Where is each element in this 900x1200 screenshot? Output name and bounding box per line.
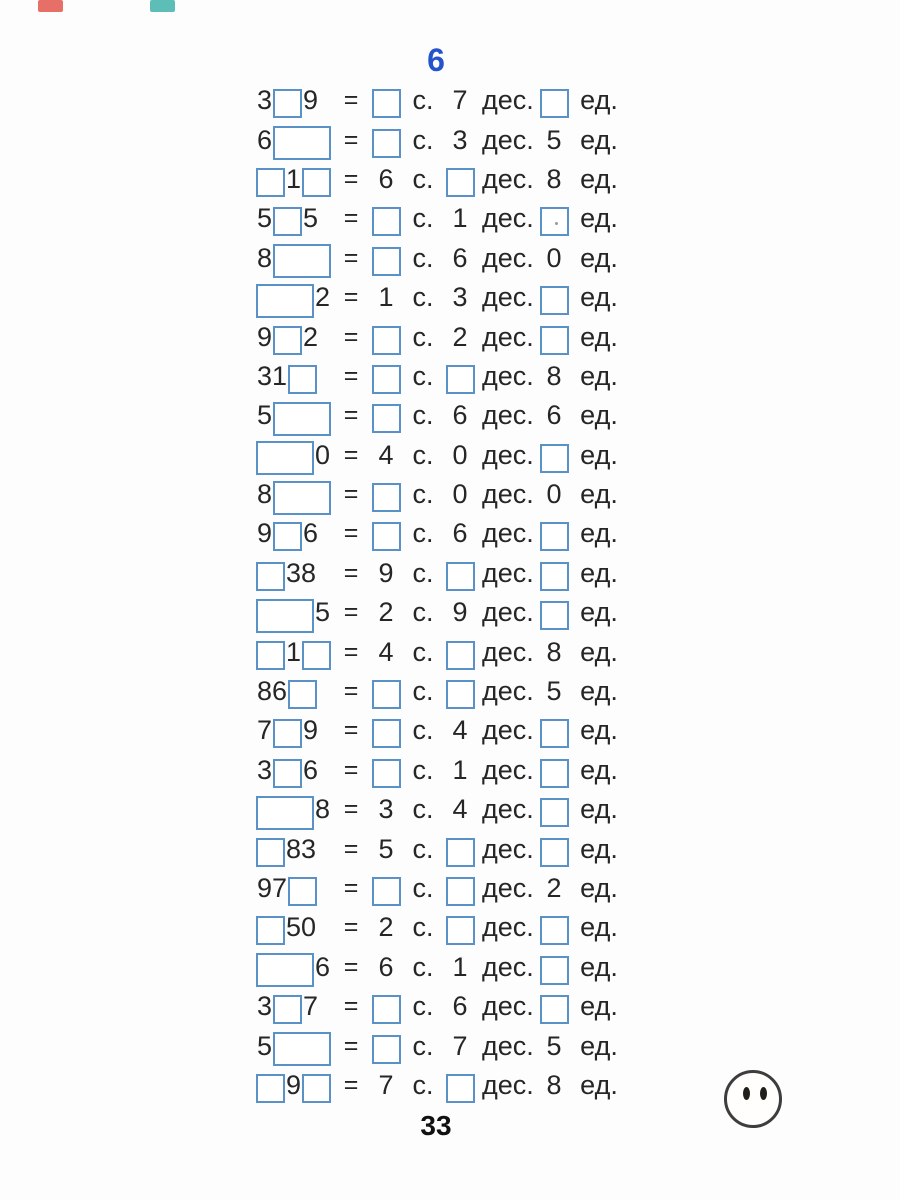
tens-label: дес. <box>482 952 532 983</box>
units-label: ед. <box>576 164 622 195</box>
answer-box[interactable] <box>302 1074 331 1103</box>
answer-box[interactable] <box>256 562 285 591</box>
tens-label: дес. <box>482 479 532 510</box>
tens-slot: 1 <box>438 203 482 234</box>
digit: 0 <box>451 479 468 510</box>
digit: 4 <box>377 440 394 471</box>
number-part: 38 <box>256 558 338 589</box>
equals-sign: = <box>338 441 364 470</box>
units-slot: 2 <box>532 873 576 904</box>
answer-box[interactable] <box>540 444 569 473</box>
hundreds-label: с. <box>408 637 438 668</box>
answer-box[interactable] <box>540 562 569 591</box>
tens-slot <box>438 1071 482 1100</box>
tens-label: дес. <box>482 715 532 746</box>
units-slot: 0 <box>532 479 576 510</box>
answer-box[interactable] <box>540 798 569 827</box>
equals-sign: = <box>338 953 364 982</box>
hundreds-slot <box>364 716 408 745</box>
answer-box[interactable] <box>372 247 401 276</box>
number-part: 96 <box>256 518 338 549</box>
number-part: 79 <box>256 715 338 746</box>
tens-label: дес. <box>482 676 532 707</box>
units-slot <box>532 716 576 745</box>
tens-slot: 0 <box>438 440 482 471</box>
units-slot: 6 <box>532 400 576 431</box>
hundreds-slot <box>364 480 408 509</box>
units-label: ед. <box>576 755 622 786</box>
units-slot <box>532 953 576 982</box>
answer-box[interactable] <box>288 877 317 906</box>
units-slot <box>532 559 576 588</box>
hundreds-slot <box>364 1032 408 1061</box>
tens-slot <box>438 874 482 903</box>
number-part: 5 <box>256 596 338 630</box>
tens-label: дес. <box>482 243 532 274</box>
answer-box[interactable] <box>446 916 475 945</box>
answer-box[interactable] <box>273 719 302 748</box>
digit: 1 <box>451 755 468 786</box>
tens-label: дес. <box>482 518 532 549</box>
answer-box[interactable] <box>372 129 401 158</box>
tens-label: дес. <box>482 400 532 431</box>
number-part: 5 <box>256 399 338 433</box>
exercise-row: 92=с.2дес.ед. <box>256 317 622 356</box>
number-part: 31 <box>256 361 338 392</box>
units-label: ед. <box>576 558 622 589</box>
tens-label: дес. <box>482 164 532 195</box>
answer-box[interactable] <box>446 562 475 591</box>
number-part: 55 <box>256 203 338 234</box>
digit: 2 <box>314 282 331 313</box>
hundreds-slot: 4 <box>364 440 408 471</box>
number-part: 50 <box>256 912 338 943</box>
answer-box[interactable] <box>273 522 302 551</box>
equals-sign: = <box>338 362 364 391</box>
units-slot: 5 <box>532 1031 576 1062</box>
answer-box[interactable] <box>302 168 331 197</box>
tens-slot: 6 <box>438 400 482 431</box>
hundreds-label: с. <box>408 243 438 274</box>
answer-box[interactable] <box>372 365 401 394</box>
digit: 97 <box>256 873 288 904</box>
corner-mark-red <box>38 0 63 12</box>
answer-box[interactable] <box>372 1035 401 1064</box>
digit: 9 <box>377 558 394 589</box>
tens-slot: 3 <box>438 282 482 313</box>
hundreds-slot <box>364 362 408 391</box>
answer-box[interactable] <box>372 522 401 551</box>
digit: 8 <box>545 637 562 668</box>
answer-box[interactable] <box>302 641 331 670</box>
tens-label: дес. <box>482 440 532 471</box>
units-label: ед. <box>576 834 622 865</box>
digit: 1 <box>285 637 302 668</box>
answer-box[interactable] <box>256 953 314 987</box>
tens-slot: 3 <box>438 125 482 156</box>
equals-sign: = <box>338 519 364 548</box>
tens-label: дес. <box>482 322 532 353</box>
worksheet-page: 6 39=с.7дес.ед.6=с.3дес.5ед.1=6с.дес.8ед… <box>0 0 900 1200</box>
digit: 0 <box>314 440 331 471</box>
units-label: ед. <box>576 85 622 116</box>
number-part: 83 <box>256 834 338 865</box>
exercise-row: 6=с.3дес.5ед. <box>256 120 622 159</box>
hundreds-slot: 2 <box>364 912 408 943</box>
exercise-row: 36=с.1дес.ед. <box>256 751 622 790</box>
digit: 38 <box>285 558 317 589</box>
answer-box[interactable] <box>273 244 331 278</box>
answer-box[interactable] <box>372 877 401 906</box>
answer-box[interactable] <box>256 1074 285 1103</box>
units-label: ед. <box>576 518 622 549</box>
answer-box[interactable] <box>256 441 314 475</box>
answer-box[interactable] <box>273 89 302 118</box>
digit: 50 <box>285 912 317 943</box>
equals-sign: = <box>338 756 364 785</box>
hundreds-label: с. <box>408 558 438 589</box>
hundreds-slot: 6 <box>364 164 408 195</box>
digit: 1 <box>285 164 302 195</box>
exercise-row: 37=с.6дес.ед. <box>256 987 622 1026</box>
stray-dot <box>555 222 558 225</box>
answer-box[interactable] <box>446 168 475 197</box>
hundreds-slot <box>364 756 408 785</box>
tens-slot: 2 <box>438 322 482 353</box>
equals-sign: = <box>338 1032 364 1061</box>
digit: 3 <box>256 991 273 1022</box>
tens-slot: 0 <box>438 479 482 510</box>
exercise-row: 31=с.дес.8ед. <box>256 357 622 396</box>
units-slot: 8 <box>532 637 576 668</box>
tens-slot: 7 <box>438 1031 482 1062</box>
digit: 9 <box>256 322 273 353</box>
units-label: ед. <box>576 952 622 983</box>
digit: 1 <box>451 203 468 234</box>
units-label: ед. <box>576 597 622 628</box>
hundreds-slot <box>364 323 408 352</box>
equals-sign: = <box>338 835 364 864</box>
tens-label: дес. <box>482 991 532 1022</box>
number-part: 8 <box>256 478 338 512</box>
digit: 8 <box>256 243 273 274</box>
answer-box[interactable] <box>540 719 569 748</box>
digit: 7 <box>256 715 273 746</box>
tens-label: дес. <box>482 1031 532 1062</box>
exercise-row: 38=9с.дес.ед. <box>256 554 622 593</box>
units-label: ед. <box>576 794 622 825</box>
answer-box[interactable] <box>273 402 331 436</box>
equals-sign: = <box>338 244 364 273</box>
units-label: ед. <box>576 1070 622 1101</box>
units-label: ед. <box>576 715 622 746</box>
units-label: ед. <box>576 361 622 392</box>
tens-slot <box>438 835 482 864</box>
hundreds-label: с. <box>408 361 438 392</box>
hundreds-label: с. <box>408 715 438 746</box>
hundreds-slot <box>364 401 408 430</box>
number-part: 39 <box>256 85 338 116</box>
tens-slot: 4 <box>438 794 482 825</box>
answer-box[interactable] <box>372 680 401 709</box>
digit: 3 <box>451 125 468 156</box>
answer-box[interactable] <box>540 995 569 1024</box>
answer-box[interactable] <box>256 796 314 830</box>
answer-box[interactable] <box>446 365 475 394</box>
digit: 6 <box>302 755 319 786</box>
number-part: 37 <box>256 991 338 1022</box>
units-label: ед. <box>576 991 622 1022</box>
hundreds-label: с. <box>408 125 438 156</box>
hundreds-label: с. <box>408 597 438 628</box>
answer-box[interactable] <box>273 995 302 1024</box>
exercise-rows: 39=с.7дес.ед.6=с.3дес.5ед.1=6с.дес.8ед.5… <box>256 81 622 1105</box>
tens-slot <box>438 677 482 706</box>
units-label: ед. <box>576 282 622 313</box>
equals-sign: = <box>338 323 364 352</box>
equals-sign: = <box>338 204 364 233</box>
answer-box[interactable] <box>540 326 569 355</box>
answer-box[interactable] <box>273 481 331 515</box>
digit: 8 <box>545 1070 562 1101</box>
exercise-row: 86=с.дес.5ед. <box>256 672 622 711</box>
units-label: ед. <box>576 322 622 353</box>
tens-label: дес. <box>482 1070 532 1101</box>
digit: 5 <box>314 597 331 628</box>
hundreds-slot <box>364 204 408 233</box>
answer-box[interactable] <box>288 680 317 709</box>
answer-box[interactable] <box>256 641 285 670</box>
hundreds-label: с. <box>408 1070 438 1101</box>
digit: 5 <box>545 125 562 156</box>
hundreds-label: с. <box>408 85 438 116</box>
hundreds-slot: 7 <box>364 1070 408 1101</box>
answer-box[interactable] <box>256 284 314 318</box>
answer-box[interactable] <box>288 365 317 394</box>
units-slot <box>532 323 576 352</box>
answer-box[interactable] <box>446 680 475 709</box>
tens-label: дес. <box>482 637 532 668</box>
digit: 9 <box>302 715 319 746</box>
hundreds-label: с. <box>408 479 438 510</box>
equals-sign: = <box>338 401 364 430</box>
answer-box[interactable] <box>372 89 401 118</box>
digit: 2 <box>377 597 394 628</box>
digit: 8 <box>256 479 273 510</box>
answer-box[interactable] <box>540 759 569 788</box>
digit: 4 <box>451 794 468 825</box>
digit: 9 <box>302 85 319 116</box>
units-slot <box>532 795 576 824</box>
answer-box[interactable] <box>273 126 331 160</box>
tens-slot: 6 <box>438 991 482 1022</box>
tens-slot: 7 <box>438 85 482 116</box>
units-slot <box>532 598 576 627</box>
hundreds-slot <box>364 874 408 903</box>
number-part: 8 <box>256 793 338 827</box>
tens-label: дес. <box>482 912 532 943</box>
exercise-row: 8=с.0дес.0ед. <box>256 475 622 514</box>
page-number: 33 <box>256 1110 616 1142</box>
tens-slot: 1 <box>438 755 482 786</box>
units-slot <box>532 756 576 785</box>
digit: 7 <box>451 1031 468 1062</box>
equals-sign: = <box>338 638 364 667</box>
equals-sign: = <box>338 716 364 745</box>
hundreds-slot <box>364 244 408 273</box>
tens-slot <box>438 913 482 942</box>
answer-box[interactable] <box>256 599 314 633</box>
tens-label: дес. <box>482 85 532 116</box>
digit: 4 <box>377 637 394 668</box>
exercise-row: 50=2с.дес.ед. <box>256 908 622 947</box>
hundreds-slot <box>364 86 408 115</box>
digit: 6 <box>545 400 562 431</box>
digit: 8 <box>545 361 562 392</box>
units-slot <box>532 441 576 470</box>
answer-box[interactable] <box>372 719 401 748</box>
exercise-row: 96=с.6дес.ед. <box>256 514 622 553</box>
answer-box[interactable] <box>446 641 475 670</box>
tens-slot: 1 <box>438 952 482 983</box>
answer-box[interactable] <box>372 207 401 236</box>
digit: 8 <box>314 794 331 825</box>
digit: 6 <box>302 518 319 549</box>
digit: 5 <box>377 834 394 865</box>
answer-box[interactable] <box>540 956 569 985</box>
exercise-row: 5=с.6дес.6ед. <box>256 396 622 435</box>
answer-box[interactable] <box>273 326 302 355</box>
smiley-eye-right <box>760 1087 767 1100</box>
exercise-row: 2=1с.3дес.ед. <box>256 278 622 317</box>
hundreds-label: с. <box>408 1031 438 1062</box>
hundreds-slot: 3 <box>364 794 408 825</box>
digit: 2 <box>377 912 394 943</box>
units-slot <box>532 86 576 115</box>
tens-slot <box>438 559 482 588</box>
answer-box[interactable] <box>540 838 569 867</box>
hundreds-slot <box>364 677 408 706</box>
answer-box[interactable] <box>540 89 569 118</box>
tens-label: дес. <box>482 794 532 825</box>
number-part: 8 <box>256 241 338 275</box>
equals-sign: = <box>338 480 364 509</box>
exercise-row: 8=с.6дес.0ед. <box>256 239 622 278</box>
answer-box[interactable] <box>372 483 401 512</box>
digit: 7 <box>302 991 319 1022</box>
digit: 31 <box>256 361 288 392</box>
answer-box[interactable] <box>446 877 475 906</box>
exercise-row: 55=с.1дес.ед. <box>256 199 622 238</box>
answer-box[interactable] <box>372 404 401 433</box>
hundreds-label: с. <box>408 203 438 234</box>
tens-slot: 4 <box>438 715 482 746</box>
equals-sign: = <box>338 126 364 155</box>
tens-label: дес. <box>482 755 532 786</box>
units-slot <box>532 283 576 312</box>
answer-box[interactable] <box>372 759 401 788</box>
answer-box[interactable] <box>540 286 569 315</box>
number-part: 97 <box>256 873 338 904</box>
hundreds-label: с. <box>408 755 438 786</box>
tens-slot: 9 <box>438 597 482 628</box>
units-label: ед. <box>576 400 622 431</box>
digit: 3 <box>256 85 273 116</box>
units-slot <box>532 204 576 233</box>
answer-box[interactable] <box>446 1074 475 1103</box>
digit: 6 <box>314 952 331 983</box>
tens-label: дес. <box>482 597 532 628</box>
digit: 2 <box>302 322 319 353</box>
equals-sign: = <box>338 913 364 942</box>
answer-box[interactable] <box>372 995 401 1024</box>
hundreds-slot: 4 <box>364 637 408 668</box>
answer-box[interactable] <box>256 916 285 945</box>
answer-box[interactable] <box>256 838 285 867</box>
digit: 5 <box>256 400 273 431</box>
units-slot: 8 <box>532 361 576 392</box>
exercise-row: 97=с.дес.2ед. <box>256 869 622 908</box>
digit: 5 <box>302 203 319 234</box>
digit: 1 <box>451 952 468 983</box>
number-part: 6 <box>256 950 338 984</box>
answer-box[interactable] <box>273 759 302 788</box>
units-slot: 8 <box>532 164 576 195</box>
smiley-eye-left <box>743 1087 750 1100</box>
exercise-row: 1=4с.дес.8ед. <box>256 632 622 671</box>
answer-box[interactable] <box>540 522 569 551</box>
digit: 7 <box>451 85 468 116</box>
answer-box[interactable] <box>372 326 401 355</box>
exercise-row: 83=5с.дес.ед. <box>256 829 622 868</box>
units-label: ед. <box>576 637 622 668</box>
answer-box[interactable] <box>256 168 285 197</box>
tens-label: дес. <box>482 558 532 589</box>
digit: 6 <box>451 518 468 549</box>
digit: 83 <box>285 834 317 865</box>
digit: 0 <box>545 243 562 274</box>
units-slot: 0 <box>532 243 576 274</box>
exercise-row: 39=с.7дес.ед. <box>256 81 622 120</box>
equals-sign: = <box>338 283 364 312</box>
digit: 6 <box>451 991 468 1022</box>
exercise-row: 5=с.7дес.5ед. <box>256 1026 622 1065</box>
equals-sign: = <box>338 559 364 588</box>
answer-box[interactable] <box>540 916 569 945</box>
answer-box[interactable] <box>273 207 302 236</box>
digit: 9 <box>451 597 468 628</box>
units-label: ед. <box>576 1031 622 1062</box>
answer-box[interactable] <box>446 838 475 867</box>
answer-box[interactable] <box>273 1032 331 1066</box>
exercise-row: 1=6с.дес.8ед. <box>256 160 622 199</box>
corner-mark-teal <box>150 0 175 12</box>
digit: 9 <box>256 518 273 549</box>
digit: 0 <box>545 479 562 510</box>
digit: 3 <box>256 755 273 786</box>
digit: 6 <box>451 243 468 274</box>
equals-sign: = <box>338 795 364 824</box>
exercise-row: 9=7с.дес.8ед. <box>256 1066 622 1105</box>
hundreds-slot: 5 <box>364 834 408 865</box>
number-part: 36 <box>256 755 338 786</box>
units-slot: 8 <box>532 1070 576 1101</box>
answer-box[interactable] <box>540 601 569 630</box>
units-slot <box>532 835 576 864</box>
number-part: 92 <box>256 322 338 353</box>
exercise-row: 6=6с.1дес.ед. <box>256 948 622 987</box>
answer-box[interactable] <box>540 207 569 236</box>
